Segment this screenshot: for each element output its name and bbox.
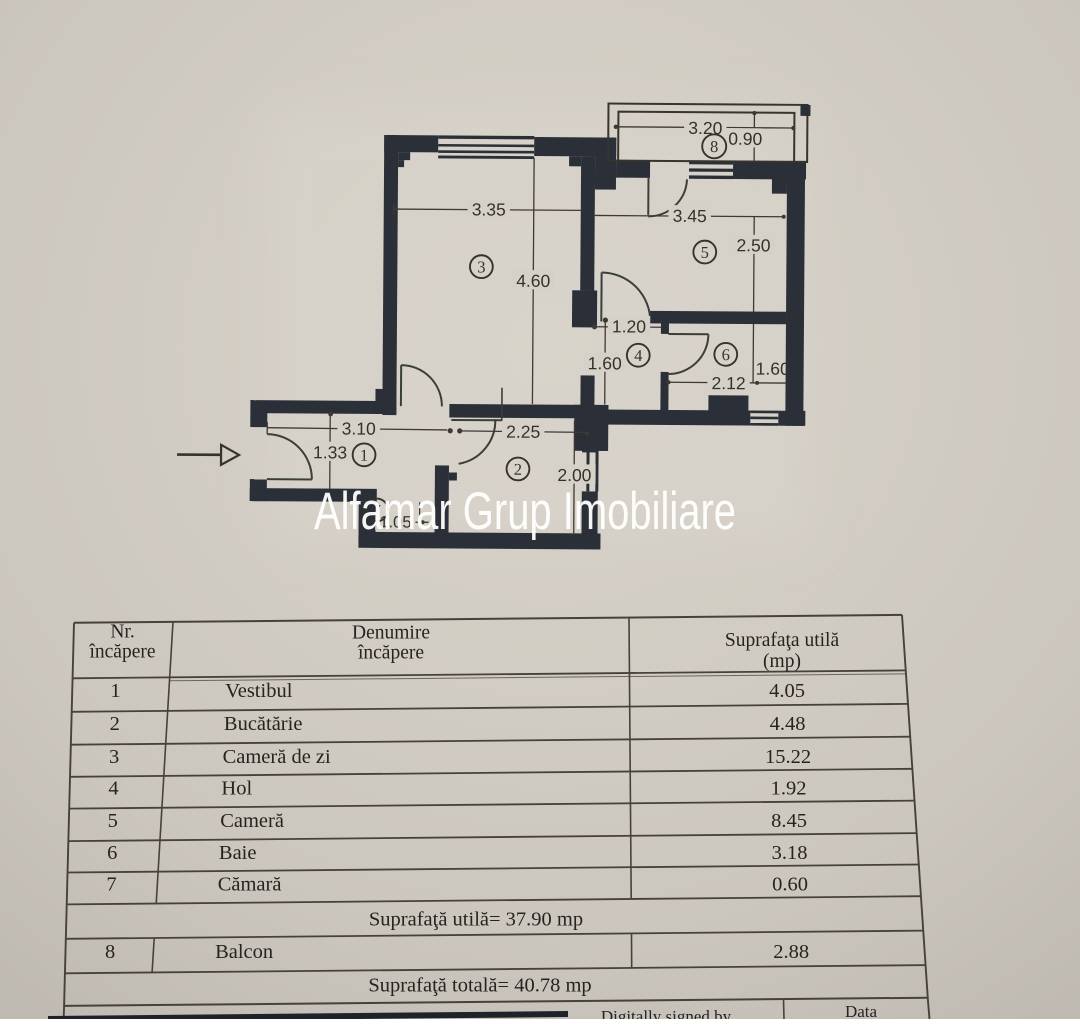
- svg-text:3.10: 3.10: [342, 418, 376, 438]
- svg-text:2.88: 2.88: [773, 941, 809, 963]
- svg-text:Suprafaţă utilă= 37.90 mp: Suprafaţă utilă= 37.90 mp: [369, 909, 583, 931]
- svg-text:4.60: 4.60: [516, 271, 550, 291]
- svg-text:4.48: 4.48: [770, 713, 806, 735]
- svg-text:Cameră: Cameră: [220, 810, 284, 832]
- svg-text:1: 1: [360, 446, 368, 465]
- svg-text:8.45: 8.45: [771, 810, 807, 832]
- svg-text:2: 2: [514, 460, 522, 479]
- svg-text:Data: Data: [845, 1002, 878, 1019]
- svg-text:Suprafaţă totală= 40.78 mp: Suprafaţă totală= 40.78 mp: [368, 975, 591, 997]
- svg-text:4: 4: [634, 346, 642, 365]
- svg-text:2: 2: [110, 713, 120, 735]
- svg-text:Balcon: Balcon: [215, 941, 273, 963]
- svg-text:6: 6: [722, 345, 730, 364]
- svg-text:8: 8: [710, 137, 718, 156]
- svg-text:Nr.: Nr.: [110, 622, 134, 643]
- svg-text:2.50: 2.50: [736, 235, 770, 255]
- svg-text:3.35: 3.35: [472, 199, 506, 219]
- svg-text:Cămară: Cămară: [218, 873, 282, 895]
- svg-text:3.18: 3.18: [772, 842, 808, 864]
- svg-text:7: 7: [106, 873, 116, 895]
- svg-text:încăpere: încăpere: [88, 642, 155, 663]
- svg-text:Cameră de zi: Cameră de zi: [223, 746, 331, 768]
- svg-text:Denumire: Denumire: [352, 623, 430, 644]
- svg-text:Baie: Baie: [219, 842, 257, 864]
- svg-text:1.20: 1.20: [612, 316, 646, 336]
- svg-text:(mp): (mp): [763, 651, 801, 672]
- svg-text:Vestibul: Vestibul: [225, 680, 293, 702]
- svg-text:1: 1: [110, 680, 120, 702]
- svg-text:1.33: 1.33: [313, 442, 347, 462]
- svg-text:3: 3: [109, 746, 119, 768]
- svg-text:0.60: 0.60: [772, 873, 808, 895]
- svg-text:Bucătărie: Bucătărie: [224, 713, 303, 735]
- svg-text:3: 3: [477, 257, 485, 276]
- svg-text:Suprafaţa utilă: Suprafaţa utilă: [725, 630, 840, 651]
- svg-text:3.45: 3.45: [673, 206, 707, 226]
- svg-text:15.22: 15.22: [765, 746, 811, 768]
- svg-text:Digitally signed by: Digitally signed by: [601, 1007, 732, 1019]
- svg-text:8: 8: [105, 941, 115, 963]
- svg-text:1.92: 1.92: [771, 778, 807, 800]
- svg-text:4: 4: [108, 778, 118, 800]
- svg-text:1.60: 1.60: [588, 353, 622, 373]
- svg-text:2.12: 2.12: [711, 373, 745, 393]
- svg-text:Alfamar Grup Imobiliare: Alfamar Grup Imobiliare: [314, 482, 736, 541]
- svg-text:1.60: 1.60: [756, 359, 790, 379]
- svg-text:6: 6: [107, 842, 117, 864]
- svg-text:2.25: 2.25: [506, 422, 540, 442]
- svg-text:5: 5: [108, 810, 118, 832]
- svg-text:4.05: 4.05: [769, 680, 805, 702]
- svg-text:încăpere: încăpere: [357, 643, 424, 664]
- svg-text:0.90: 0.90: [728, 129, 762, 149]
- svg-text:Hol: Hol: [221, 778, 252, 800]
- svg-text:5: 5: [701, 243, 709, 262]
